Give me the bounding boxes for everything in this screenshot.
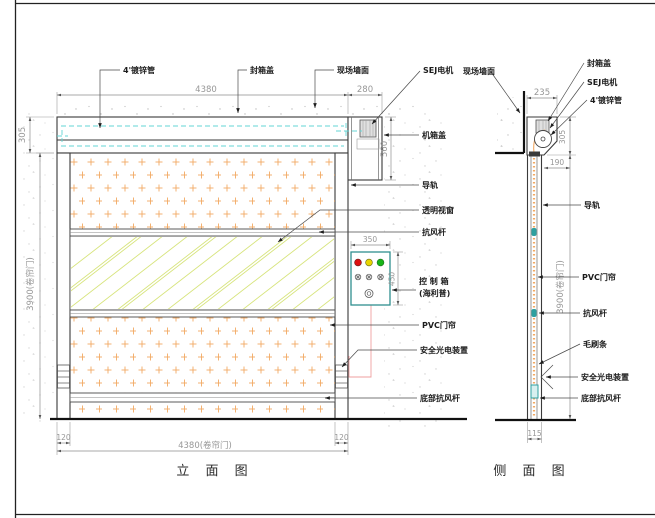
label-side-guide-rail: 导轨 bbox=[584, 200, 600, 210]
dim-head-width: 280 bbox=[357, 85, 373, 95]
label-side-box-cover: 封箱盖 bbox=[587, 58, 611, 68]
rail-top-bracket bbox=[529, 152, 540, 157]
photocell-bracket-right bbox=[336, 365, 348, 388]
dim-housing-depth: 235 bbox=[534, 88, 550, 98]
drawing-canvas: 4380 280 305 560 3900(卷帘门) 350 450 bbox=[0, 0, 655, 518]
dim-panel-height: 450 bbox=[388, 272, 397, 287]
label-safety-photocell: 安全光电装置 bbox=[420, 345, 468, 355]
side-bottom-bar bbox=[531, 385, 538, 398]
indicator-light-red bbox=[355, 259, 362, 266]
indicator-light-yellow bbox=[366, 259, 373, 266]
front-view-title: 立 面 图 bbox=[176, 464, 253, 479]
label-side-sej-motor: SEJ电机 bbox=[587, 77, 617, 87]
dim-rail-left: 120 bbox=[56, 433, 71, 442]
label-side-bottom-wind-bar: 底部抗风杆 bbox=[580, 393, 621, 403]
label-side-pvc-curtain: PVC门帘 bbox=[582, 272, 616, 282]
control-box bbox=[349, 252, 390, 377]
side-wind-bar-lower bbox=[532, 309, 537, 317]
header-box bbox=[57, 117, 348, 153]
dim-side-door-height: 3900(卷帘门) bbox=[555, 260, 566, 314]
label-machine-box-cover: 机箱盖 bbox=[422, 130, 446, 140]
label-side-safety-photocell: 安全光电装置 bbox=[581, 372, 629, 382]
label-pvc-curtain: PVC门帘 bbox=[422, 320, 456, 330]
label-side-site-wall: 现场墙面 bbox=[463, 66, 495, 76]
dim-panel-width: 350 bbox=[363, 235, 378, 244]
dim-side-header-height: 305 bbox=[558, 130, 567, 145]
cad-drawing-roller-door: 4380 280 305 560 3900(卷帘门) 350 450 bbox=[0, 0, 655, 518]
label-bottom-wind-bar: 底部抗风杆 bbox=[419, 393, 460, 403]
label-control-box-brand: (海利普) bbox=[419, 288, 450, 298]
photocell-bracket-left bbox=[58, 365, 70, 388]
dim-header-height: 305 bbox=[18, 127, 28, 143]
label-brush-strip: 毛刷条 bbox=[583, 339, 608, 349]
dim-rail-right: 120 bbox=[334, 433, 349, 442]
roller-drum bbox=[535, 131, 552, 148]
label-site-wall: 现场墙面 bbox=[337, 65, 369, 75]
dim-rail-offset: 190 bbox=[550, 158, 565, 167]
side-door bbox=[528, 155, 554, 419]
control-buttons bbox=[355, 274, 383, 280]
side-wall bbox=[495, 91, 524, 153]
label-transparent-window: 透明视窗 bbox=[422, 205, 454, 215]
label-galvanized-pipe: 4'镀锌管 bbox=[123, 65, 155, 75]
dim-opening-width: 4380(卷帘门) bbox=[178, 440, 232, 451]
dim-door-height: 3900(卷帘门) bbox=[25, 257, 36, 311]
label-control-box: 控 制 箱 bbox=[419, 276, 449, 286]
side-housing bbox=[527, 117, 557, 157]
dim-top-width: 4380 bbox=[195, 85, 217, 95]
side-wind-bar-upper bbox=[532, 228, 537, 236]
side-callouts: 现场墙面 封箱盖 SEJ电机 4'镀锌管 导轨 PVC门帘 抗风杆 毛刷条 安全… bbox=[463, 58, 629, 403]
side-view: 235 305 190 3900(卷帘门) 115 现场墙面 封箱盖 SEJ电机… bbox=[463, 58, 629, 479]
front-view: 4380 280 305 560 3900(卷帘门) 350 450 bbox=[12, 65, 468, 479]
label-side-galvanized-pipe: 4'镀锌管 bbox=[590, 95, 622, 105]
dim-base-width: 115 bbox=[527, 429, 542, 438]
photocell-wire bbox=[349, 305, 371, 377]
label-sej-motor: SEJ电机 bbox=[423, 65, 453, 75]
indicator-light-green bbox=[377, 259, 384, 266]
dim-motorbox-height: 560 bbox=[380, 141, 390, 157]
label-wind-bar: 抗风杆 bbox=[422, 227, 446, 237]
label-box-cover: 封箱盖 bbox=[250, 65, 274, 75]
label-side-wind-bar: 抗风杆 bbox=[583, 308, 607, 318]
side-view-title: 侧 面 图 bbox=[493, 464, 570, 479]
label-guide-rail: 导轨 bbox=[422, 180, 438, 190]
